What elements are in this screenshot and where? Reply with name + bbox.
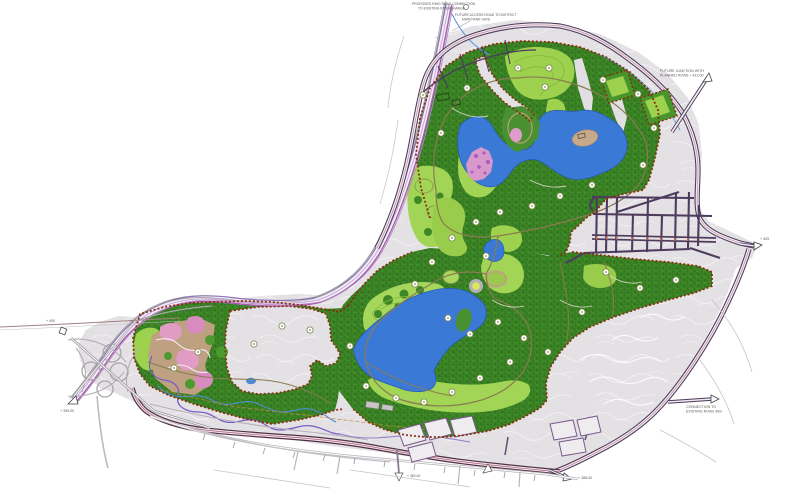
svg-text:TO EXISTING INTERCHANGE: TO EXISTING INTERCHANGE [418,7,466,11]
svg-text:MAIN PARK GATE: MAIN PARK GATE [462,18,491,22]
svg-text:+ 405: + 405 [760,237,769,241]
svg-text:+ 382.00: + 382.00 [407,474,420,478]
svg-text:FUTURE JUNCTION WITH: FUTURE JUNCTION WITH [660,69,704,73]
svg-text:PROPOSED RING ROAD CONNECTION: PROPOSED RING ROAD CONNECTION [412,2,476,6]
svg-text:+ 388.00: + 388.00 [578,476,592,480]
svg-text:FUTURE ACCESS ROAD TO DISTRICT: FUTURE ACCESS ROAD TO DISTRICT [455,13,516,17]
svg-text:+ 400: + 400 [46,319,55,323]
svg-text:PLANNED ROAD + 412.00: PLANNED ROAD + 412.00 [660,74,703,78]
svg-text:CONNECTION TO: CONNECTION TO [686,405,716,409]
svg-text:EXISTING ROAD 40m: EXISTING ROAD 40m [686,410,722,414]
svg-text:+ 395.00: + 395.00 [60,409,74,413]
